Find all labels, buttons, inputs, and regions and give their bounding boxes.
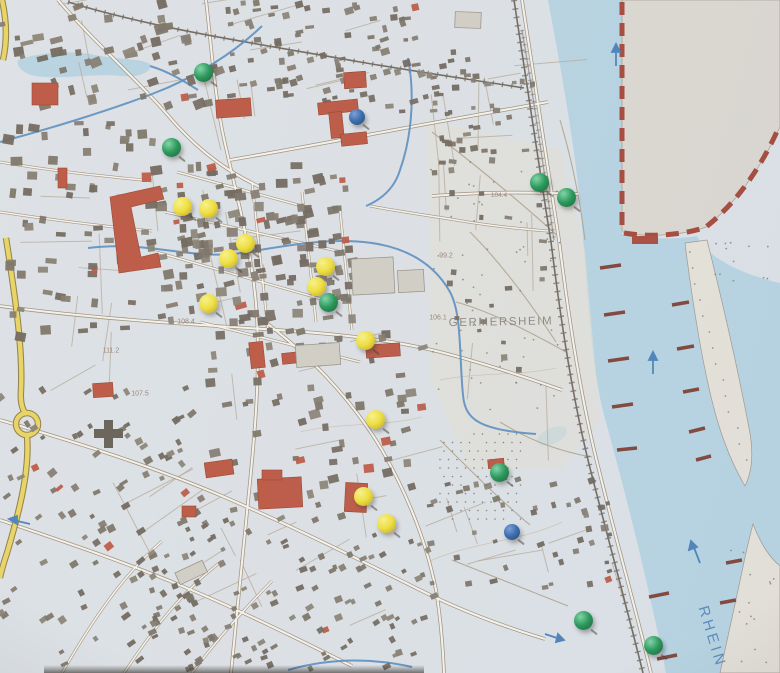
pushpin-yellow[interactable]: [307, 277, 326, 296]
pushpin-green[interactable]: [557, 188, 576, 207]
pushpin-green[interactable]: [644, 636, 663, 655]
pushpin-yellow[interactable]: [366, 410, 385, 429]
pushpin-green[interactable]: [194, 63, 213, 82]
pushpin-yellow[interactable]: [356, 331, 375, 350]
pushpin-yellow[interactable]: [354, 487, 373, 506]
pushpin-yellow[interactable]: [316, 257, 335, 276]
pushpin-yellow[interactable]: [173, 197, 192, 216]
base-map: [0, 0, 780, 673]
map-label-elevation: 111.2: [103, 348, 119, 355]
map-label-elevation: 104.4: [491, 193, 507, 200]
pushpin-green[interactable]: [319, 293, 338, 312]
pushpin-blue[interactable]: [504, 524, 520, 540]
pushpin-green[interactable]: [162, 138, 181, 157]
pushpin-green[interactable]: [490, 463, 509, 482]
map-photo: GERMERSHEIMRHEIN107.5111.2108.499.2106.1…: [0, 0, 780, 673]
pushpin-yellow[interactable]: [377, 514, 396, 533]
pushpin-green[interactable]: [530, 173, 549, 192]
map-label-elevation: 106.1: [429, 315, 447, 322]
map-label-elevation: 108.4: [177, 319, 195, 326]
pushpin-yellow[interactable]: [199, 294, 218, 313]
pushpin-yellow[interactable]: [236, 234, 255, 253]
pushpin-blue[interactable]: [349, 109, 365, 125]
pushpin-yellow[interactable]: [199, 199, 218, 218]
map-label-city-name: GERMERSHEIM: [449, 316, 554, 329]
map-label-elevation: 99.2: [439, 253, 453, 260]
map-label-elevation: 107.5: [131, 391, 149, 398]
pushpin-yellow[interactable]: [219, 249, 238, 268]
pushpin-green[interactable]: [574, 611, 593, 630]
